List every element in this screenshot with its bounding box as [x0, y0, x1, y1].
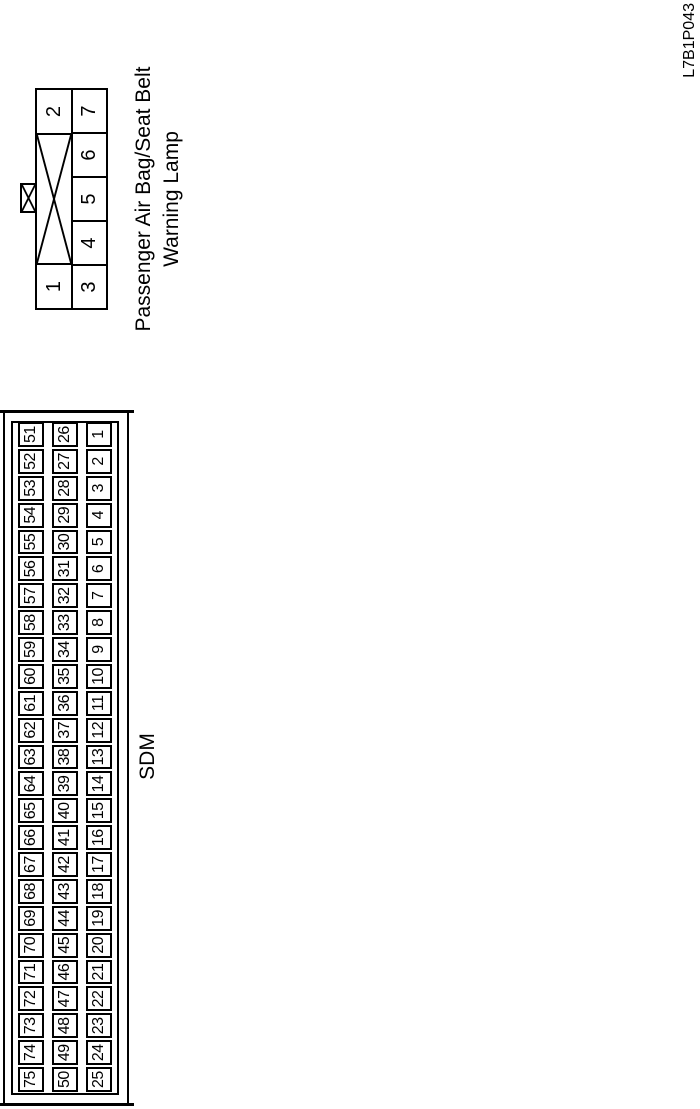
warning-lamp-label-line1: Passenger Air Bag/Seat Belt: [130, 43, 158, 355]
pin-cell: 6: [86, 557, 112, 582]
pin-cell: 12: [86, 718, 112, 743]
pin-cell: 48: [52, 1013, 78, 1038]
pin-cell: 2: [86, 449, 112, 474]
pin-cell: 3: [86, 476, 112, 501]
pin-cell: 22: [86, 987, 112, 1012]
pin-cell: 60: [18, 664, 44, 689]
pin-cell: 5: [73, 176, 106, 220]
pin-cell: 7: [73, 90, 106, 132]
pin-cell: 71: [18, 960, 44, 985]
warning-lamp-label-line2: Warning Lamp: [158, 43, 186, 355]
pin-cell: 11: [86, 691, 112, 716]
pin-cell: 2: [37, 90, 71, 133]
pin-cell: 13: [86, 745, 112, 770]
figure-code-label: L7B1P043: [681, 3, 699, 78]
pin-cell: 70: [18, 933, 44, 958]
pin-cell: 37: [52, 718, 78, 743]
pin-cell: 25: [86, 1067, 112, 1092]
pin-cell: 7: [86, 583, 112, 608]
diagram-page: 7574737271706968676665646362616059585756…: [0, 0, 700, 1109]
pin-cell: 6: [73, 132, 106, 176]
warning-lamp-connector: 1 2 34567 Passenger Air Bag/Seat Belt Wa…: [20, 88, 190, 310]
pin-cell: 26: [52, 422, 78, 447]
x-mark-icon: [22, 185, 35, 211]
pin-cell: 42: [52, 852, 78, 877]
warning-lamp-connector-label: Passenger Air Bag/Seat Belt Warning Lamp: [130, 43, 186, 355]
x-mark-icon: [37, 135, 71, 263]
pin-cell: 29: [52, 503, 78, 528]
pin-cell: 66: [18, 825, 44, 850]
pin-cell: 63: [18, 745, 44, 770]
pin-cell: 43: [52, 879, 78, 904]
pin-cell: 9: [86, 637, 112, 662]
pin-cell: 21: [86, 960, 112, 985]
pin-cell: 40: [52, 798, 78, 823]
pin-cell: 10: [86, 664, 112, 689]
pin-cell: 23: [86, 1013, 112, 1038]
pin-cell: 38: [52, 745, 78, 770]
pin-cell: 49: [52, 1040, 78, 1065]
pin-cell: 16: [86, 825, 112, 850]
pin-cell: 19: [86, 906, 112, 931]
pin-cell: 17: [86, 852, 112, 877]
pin-cell: 1: [86, 422, 112, 447]
sdm-connector: 7574737271706968676665646362616059585756…: [0, 404, 170, 1109]
pin-cell: 59: [18, 637, 44, 662]
pin-cell: 58: [18, 610, 44, 635]
pin-cell: 8: [86, 610, 112, 635]
pin-cell: 28: [52, 476, 78, 501]
pin-cell: 57: [18, 583, 44, 608]
pin-cell: 1: [37, 265, 71, 308]
lamp-pin-row-bottom: 34567: [73, 90, 106, 308]
pin-cell: 61: [18, 691, 44, 716]
keyway-x-box: [37, 133, 71, 265]
pin-cell: 68: [18, 879, 44, 904]
pin-cell: 56: [18, 557, 44, 582]
pin-cell: 5: [86, 530, 112, 555]
pin-cell: 4: [73, 220, 106, 264]
pin-cell: 44: [52, 906, 78, 931]
sdm-pin-row-middle: 5049484746454443424140393837363534333231…: [52, 422, 78, 1092]
pin-cell: 52: [18, 449, 44, 474]
pin-cell: 39: [52, 772, 78, 797]
pin-cell: 20: [86, 933, 112, 958]
pin-cell: 65: [18, 798, 44, 823]
pin-cell: 46: [52, 960, 78, 985]
pin-cell: 4: [86, 503, 112, 528]
pin-cell: 50: [52, 1067, 78, 1092]
sdm-pin-row-bottom: 2524232221201918171615141312111098765432…: [86, 422, 112, 1092]
pin-cell: 69: [18, 906, 44, 931]
pin-cell: 3: [73, 264, 106, 308]
pin-cell: 75: [18, 1067, 44, 1092]
pin-cell: 67: [18, 852, 44, 877]
pin-cell: 64: [18, 772, 44, 797]
pin-cell: 47: [52, 987, 78, 1012]
pin-cell: 33: [52, 610, 78, 635]
pin-cell: 53: [18, 476, 44, 501]
pin-cell: 54: [18, 503, 44, 528]
pin-cell: 30: [52, 530, 78, 555]
lamp-pin-row-top: 1 2: [37, 90, 73, 308]
pin-cell: 73: [18, 1013, 44, 1038]
pin-cell: 51: [18, 422, 44, 447]
pin-cell: 15: [86, 798, 112, 823]
pin-cell: 14: [86, 772, 112, 797]
pin-cell: 62: [18, 718, 44, 743]
pin-cell: 45: [52, 933, 78, 958]
pin-cell: 32: [52, 583, 78, 608]
pin-cell: 27: [52, 449, 78, 474]
pin-cell: 18: [86, 879, 112, 904]
pin-cell: 31: [52, 557, 78, 582]
pin-cell: 74: [18, 1040, 44, 1065]
warning-lamp-connector-body: 1 2 34567: [35, 88, 108, 310]
sdm-connector-label: SDM: [136, 404, 160, 1109]
rotated-diagram-canvas: 7574737271706968676665646362616059585756…: [0, 0, 700, 1109]
pin-cell: 24: [86, 1040, 112, 1065]
pin-cell: 34: [52, 637, 78, 662]
pin-cell: 72: [18, 987, 44, 1012]
pin-cell: 55: [18, 530, 44, 555]
sdm-pin-row-top: 7574737271706968676665646362616059585756…: [18, 422, 44, 1092]
pin-cell: 41: [52, 825, 78, 850]
pin-cell: 36: [52, 691, 78, 716]
pin-cell: 35: [52, 664, 78, 689]
